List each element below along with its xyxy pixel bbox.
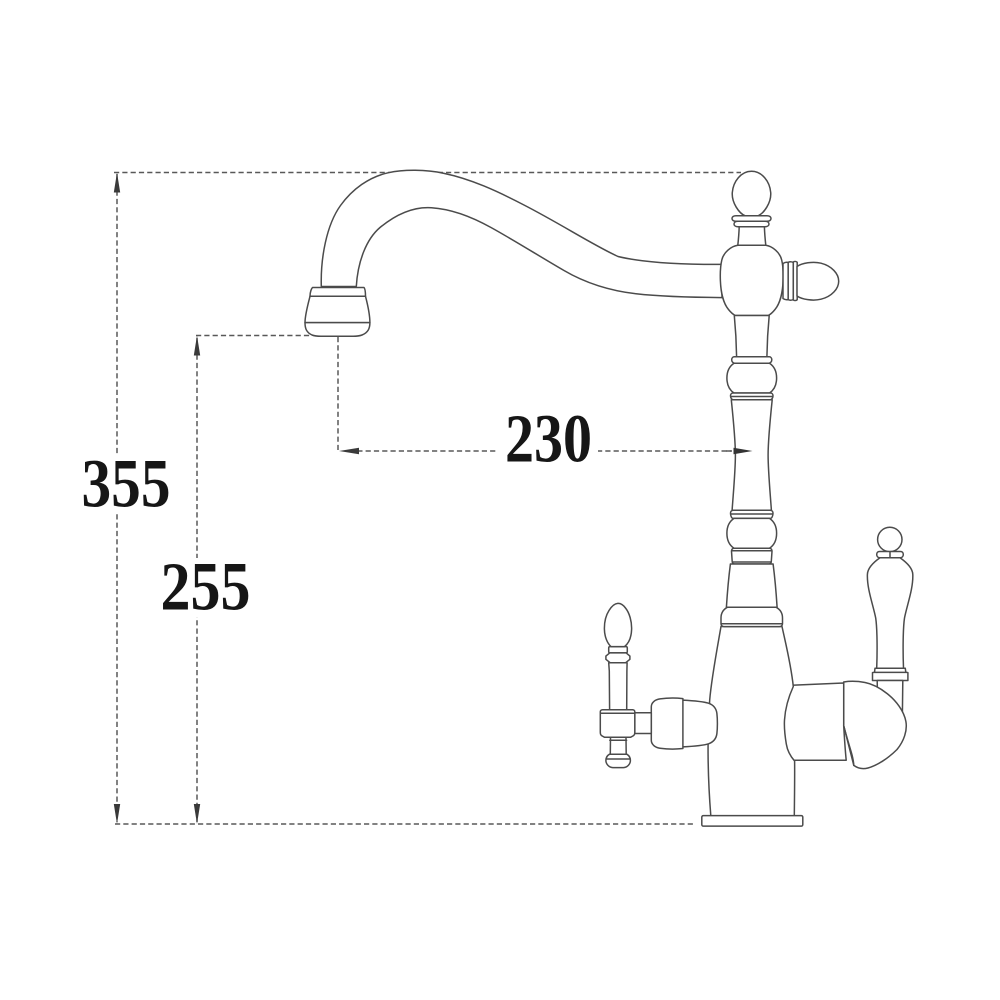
svg-text:355: 355: [82, 446, 171, 522]
svg-text:230: 230: [505, 401, 592, 477]
svg-text:255: 255: [161, 549, 251, 625]
